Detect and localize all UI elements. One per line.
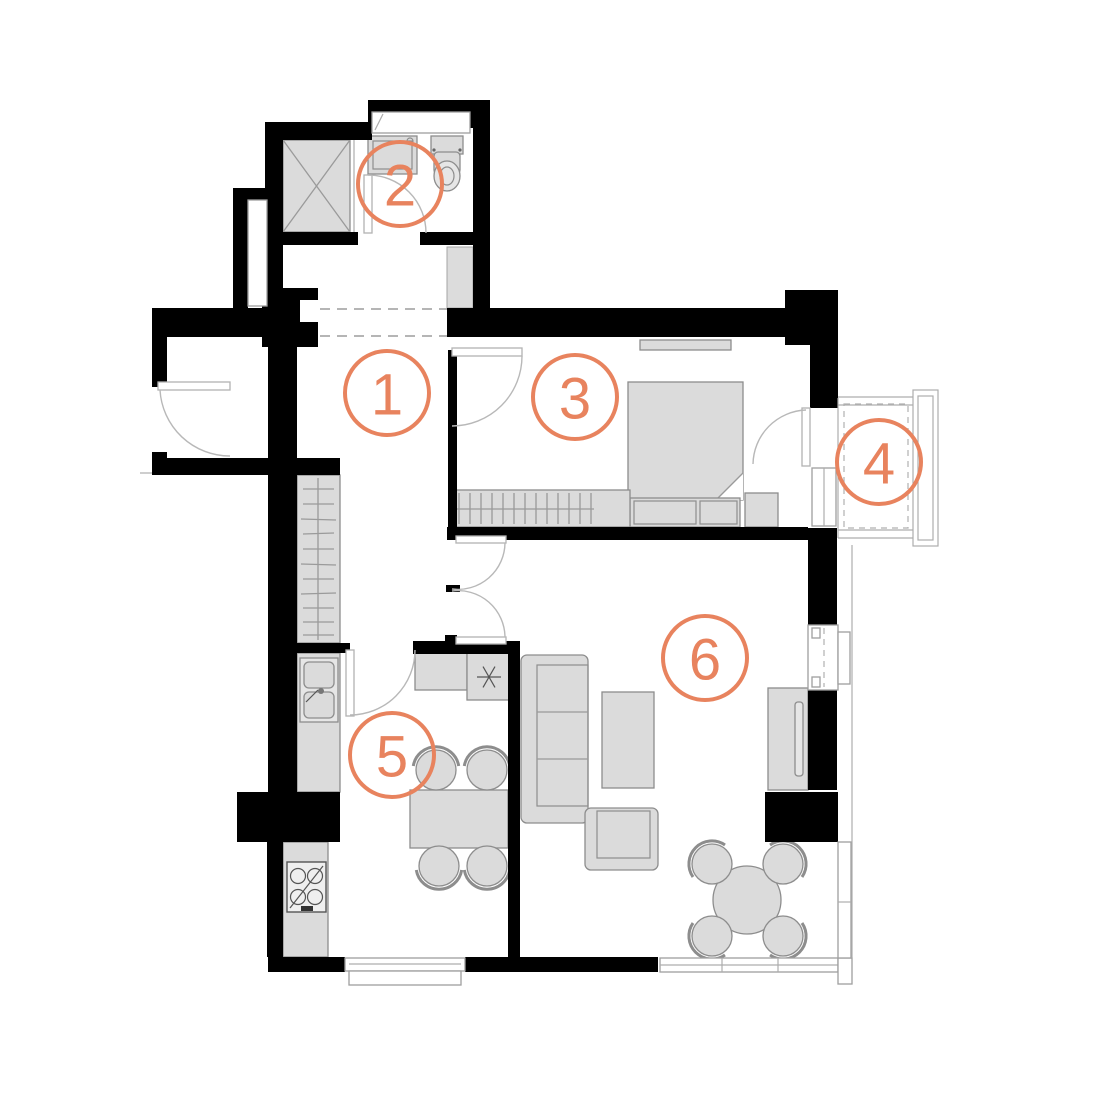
stove: [287, 862, 326, 912]
nightstand: [745, 493, 778, 527]
living-room-door-upper: [452, 536, 506, 589]
tv-cabinet: [768, 688, 808, 790]
ceiling-opening-dashed: [320, 309, 447, 336]
bed: [628, 382, 743, 527]
living-window-east: [808, 625, 850, 690]
dining-chair: [464, 846, 509, 889]
round-table-chair: [689, 841, 732, 884]
living-glazing-east: [838, 545, 852, 958]
room-marker-1: 1: [345, 351, 429, 435]
room-marker-5: 5: [350, 713, 434, 797]
bedroom-wardrobe: [452, 490, 630, 527]
duct-shaft: [447, 247, 473, 308]
dining-chair: [464, 747, 509, 790]
kitchen-window: [345, 958, 465, 985]
entry-niche: [248, 200, 267, 306]
kitchen-sink: [300, 658, 338, 722]
coffee-table: [602, 692, 654, 788]
round-table-chair: [763, 841, 806, 884]
wall-shelf: [640, 340, 731, 350]
room-marker-6: 6: [663, 616, 747, 700]
svg-text:2: 2: [384, 154, 416, 219]
hall-wardrobe: [297, 475, 340, 643]
room-marker-3: 3: [533, 355, 617, 439]
shower: [283, 140, 354, 232]
armchair: [585, 808, 658, 870]
bedroom-balcony-sidelight: [812, 468, 836, 526]
dining-table: [410, 790, 508, 848]
floor-plan: 1 2 3 4 5 6: [0, 0, 1100, 1100]
balcony-door: [753, 408, 810, 466]
svg-text:6: 6: [689, 628, 721, 693]
svg-text:3: 3: [559, 367, 591, 432]
entry-door: [158, 382, 230, 456]
svg-text:1: 1: [371, 363, 403, 428]
round-table-chair: [689, 916, 732, 959]
kitchen-door: [346, 650, 415, 716]
sofa: [521, 655, 588, 823]
svg-text:5: 5: [376, 725, 408, 790]
round-table-chair: [763, 916, 806, 959]
living-window-south: [660, 958, 852, 984]
living-room-door-lower: [452, 591, 506, 644]
bedroom-door: [452, 348, 522, 426]
svg-text:4: 4: [863, 432, 895, 497]
dining-chair: [416, 846, 461, 889]
bathroom-window-strip: [372, 112, 470, 133]
